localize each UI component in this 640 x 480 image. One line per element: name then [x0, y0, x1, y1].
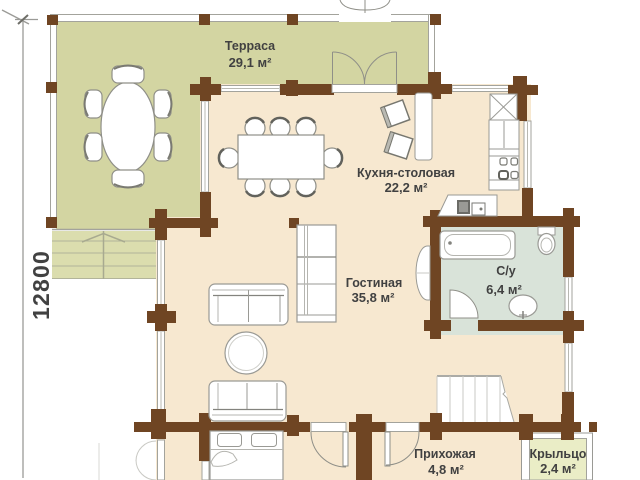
svg-text:4,8 м²: 4,8 м²	[428, 462, 464, 477]
svg-text:Крыльцо: Крыльцо	[530, 447, 587, 461]
svg-text:35,8 м²: 35,8 м²	[352, 290, 396, 305]
svg-text:22,2 м²: 22,2 м²	[385, 180, 429, 195]
svg-text:С/у: С/у	[496, 264, 516, 278]
svg-text:12800: 12800	[28, 250, 54, 320]
svg-text:Терраса: Терраса	[225, 39, 276, 53]
svg-text:Гостиная: Гостиная	[346, 276, 403, 290]
svg-text:2,4 м²: 2,4 м²	[540, 461, 576, 476]
svg-text:Прихожая: Прихожая	[414, 447, 476, 461]
svg-text:6,4 м²: 6,4 м²	[486, 282, 522, 297]
svg-text:Кухня-столовая: Кухня-столовая	[357, 166, 455, 180]
svg-text:29,1 м²: 29,1 м²	[229, 55, 273, 70]
